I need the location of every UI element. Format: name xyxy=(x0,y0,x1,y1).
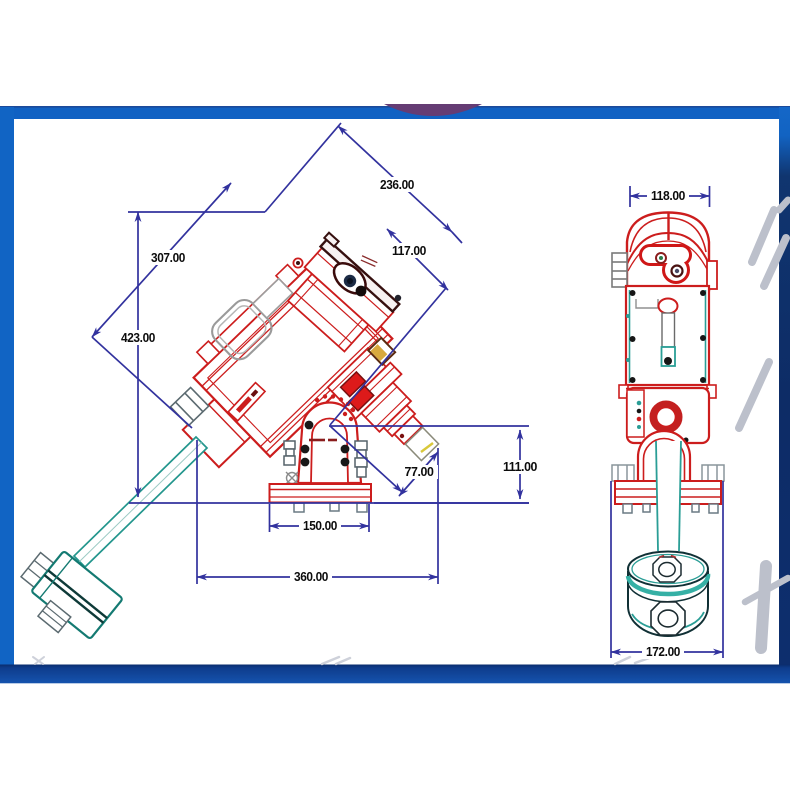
svg-text:236.00: 236.00 xyxy=(380,178,414,192)
svg-text:172.00: 172.00 xyxy=(646,645,680,659)
svg-text:360.00: 360.00 xyxy=(294,570,328,584)
svg-text:150.00: 150.00 xyxy=(303,519,337,533)
svg-text:111.00: 111.00 xyxy=(503,460,537,474)
svg-text:423.00: 423.00 xyxy=(121,331,155,345)
svg-text:307.00: 307.00 xyxy=(151,251,185,265)
svg-text:118.00: 118.00 xyxy=(651,189,685,203)
svg-text:117.00: 117.00 xyxy=(392,244,426,258)
svg-text:77.00: 77.00 xyxy=(405,465,434,479)
